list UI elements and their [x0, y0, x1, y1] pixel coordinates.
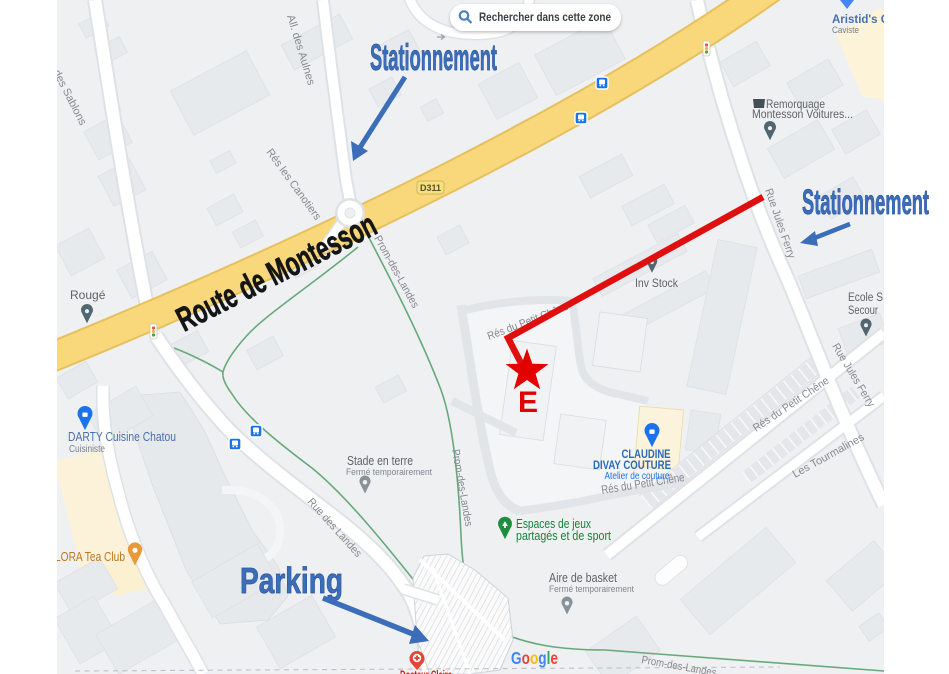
- svg-text:E: E: [518, 386, 538, 419]
- svg-text:Rougé: Rougé: [70, 288, 106, 302]
- svg-text:Montesson Voitures...: Montesson Voitures...: [752, 107, 853, 121]
- svg-text:DARTY Cuisine Chatou: DARTY Cuisine Chatou: [68, 430, 176, 444]
- svg-text:Ecole S: Ecole S: [848, 292, 883, 304]
- svg-text:Docteur Claire: Docteur Claire: [400, 668, 452, 674]
- svg-text:Atelier de couture: Atelier de couture: [605, 470, 670, 482]
- svg-text:Stationnement: Stationnement: [802, 183, 929, 222]
- svg-text:LORA Tea Club: LORA Tea Club: [55, 550, 125, 564]
- svg-text:Fermé temporairement: Fermé temporairement: [346, 467, 432, 478]
- svg-text:partagés et de sport: partagés et de sport: [516, 529, 611, 543]
- svg-text:Cuisiniste: Cuisiniste: [69, 444, 105, 455]
- svg-text:Stationnement: Stationnement: [370, 37, 497, 78]
- svg-text:D311: D311: [420, 183, 441, 193]
- svg-text:Inv Stock: Inv Stock: [635, 276, 679, 290]
- svg-text:Aire de basket: Aire de basket: [549, 571, 617, 585]
- svg-text:Fermé temporairement: Fermé temporairement: [549, 584, 634, 595]
- svg-text:Secour: Secour: [848, 305, 878, 317]
- svg-text:Parking: Parking: [240, 560, 343, 601]
- svg-text:Stade en terre: Stade en terre: [347, 454, 413, 468]
- svg-text:Google: Google: [511, 648, 558, 668]
- svg-text:Caviste: Caviste: [832, 25, 859, 36]
- svg-text:Rechercher dans cette zone: Rechercher dans cette zone: [479, 12, 611, 24]
